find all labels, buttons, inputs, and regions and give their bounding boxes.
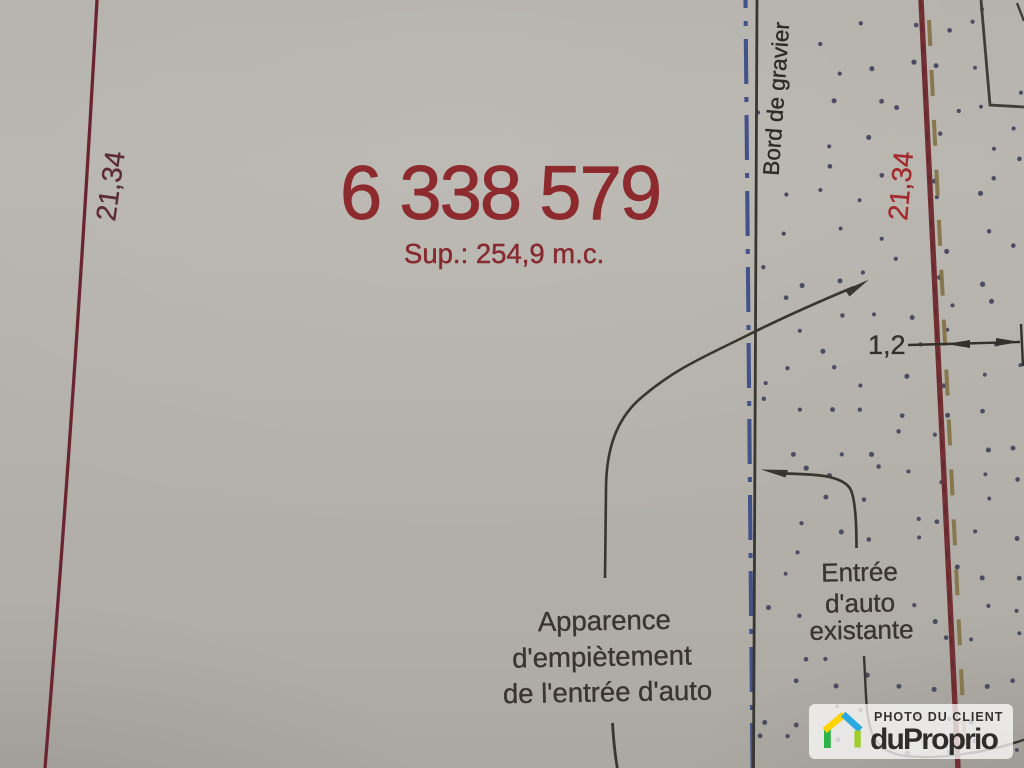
svg-text:6 338 579: 6 338 579 [340,151,660,236]
svg-text:21,34: 21,34 [882,150,919,221]
svg-text:21,34: 21,34 [90,149,130,223]
svg-text:de l'entrée d'auto: de l'entrée d'auto [503,675,713,710]
svg-text:Apparence: Apparence [538,604,672,637]
svg-text:existante: existante [809,614,914,646]
svg-text:d'empiètement: d'empiètement [512,639,692,673]
svg-text:duProprio: duProprio [870,723,999,756]
svg-text:Bord de gravier: Bord de gravier [759,21,795,177]
svg-text:Sup.: 254,9 m.c.: Sup.: 254,9 m.c. [404,238,604,269]
svg-text:Entrée: Entrée [821,556,898,587]
svg-text:PHOTO DU CLIENT: PHOTO DU CLIENT [874,710,1003,724]
svg-text:1,2: 1,2 [868,330,906,360]
